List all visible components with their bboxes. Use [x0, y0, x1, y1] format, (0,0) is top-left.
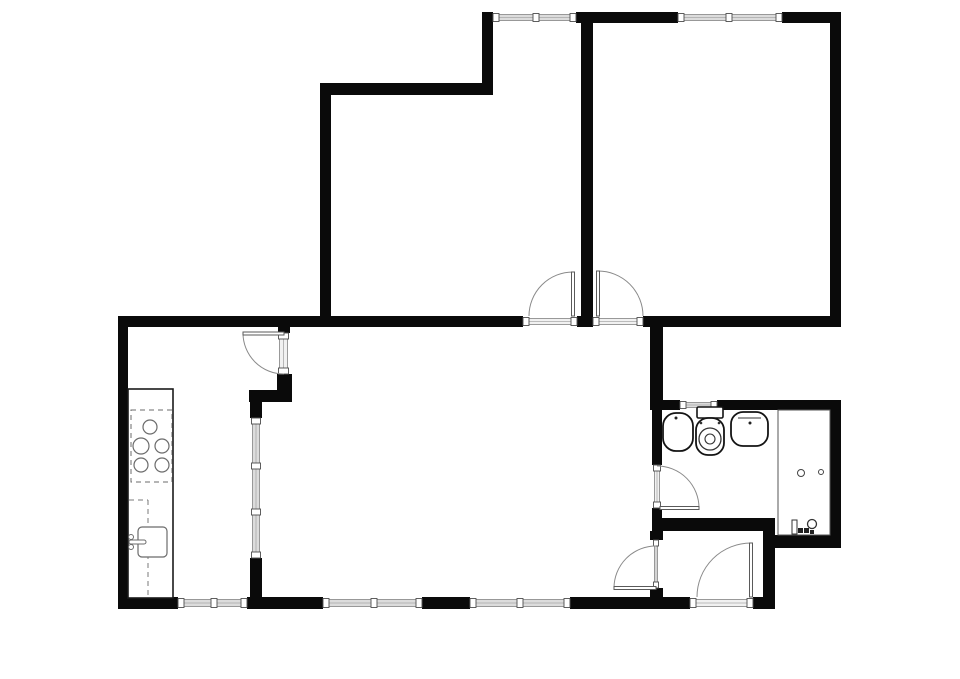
wall-bedroom-middle-left	[320, 83, 331, 327]
washbasin-left-tap	[675, 417, 678, 420]
bath-accessory-1	[798, 528, 803, 533]
wall-kitchen-glass-bottom	[250, 558, 262, 598]
shower-knob-1	[819, 470, 824, 475]
faucet-spout	[129, 540, 146, 544]
window-bottom-right-cap-end	[564, 599, 570, 608]
wall-left	[118, 316, 128, 609]
wall-hall-right	[763, 518, 775, 609]
door-hallway-leaf	[614, 587, 656, 590]
window-bottom-right-cap-start	[470, 599, 476, 608]
wall-kitchen-glass-top	[250, 402, 262, 418]
window-kitchen-partition-mullion-0	[252, 463, 261, 469]
wall-top-connector	[482, 12, 493, 95]
door-bedroom-right-threshold-cap-end	[637, 318, 643, 326]
bath-accessory-4	[810, 530, 814, 534]
window-kitchen-partition-cap-start	[252, 418, 261, 424]
wall-bottom-3	[422, 597, 470, 609]
wall-bedroom-divider	[581, 12, 593, 327]
wall-bottom-2	[247, 597, 323, 609]
bath-accessory-2	[804, 528, 809, 533]
wall-kitchen-door-bottom	[277, 374, 292, 390]
wall-bath-top-right	[717, 400, 838, 410]
door-entrance-leaf	[750, 543, 753, 597]
shower-knob-0	[798, 470, 805, 477]
door-bedroom-right-threshold-cap-start	[593, 318, 599, 326]
toilet-tank	[697, 407, 723, 418]
wall-kitchen-return	[249, 390, 292, 402]
window-kitchen-partition-mullion-1	[252, 509, 261, 515]
window-top-left-cap-end	[570, 14, 576, 22]
window-top-left-mullion-0	[533, 14, 539, 22]
door-bedroom-right-leaf	[597, 271, 600, 316]
window-bathroom-cap-start	[680, 402, 686, 409]
door-kitchen-threshold-cap-end	[279, 368, 289, 374]
faucet-knob-1	[129, 545, 134, 550]
wall-middle-left	[118, 316, 523, 327]
wall-hall-left-upper	[650, 531, 663, 540]
wall-right-bedroom	[830, 12, 841, 327]
window-top-left-cap-start	[493, 14, 499, 22]
toilet-hinge-0	[700, 422, 703, 425]
bath-accessory-0	[792, 520, 797, 534]
toilet-hole	[705, 434, 715, 444]
bath-accessory-3	[808, 520, 817, 529]
window-bottom-middle-cap-end	[416, 599, 422, 608]
wall-bath-top-left	[650, 400, 680, 410]
door-hallway-threshold-cap-start	[654, 540, 659, 546]
floorplan-stage	[0, 0, 960, 679]
floorplan-svg	[0, 0, 960, 679]
door-kitchen-leaf	[243, 332, 284, 335]
door-entrance-threshold-cap-start	[690, 599, 696, 608]
window-bottom-right-mullion-0	[517, 599, 523, 608]
wall-bottom-4	[570, 597, 690, 609]
wall-bath-right	[830, 400, 841, 548]
door-bedroom-middle-leaf	[572, 272, 575, 316]
door-entrance-threshold-cap-end	[747, 599, 753, 608]
washbasin-right-tap	[749, 422, 752, 425]
washbasin-left	[663, 413, 693, 451]
wall-bath-left-upper	[652, 410, 662, 465]
door-bedroom-middle-threshold-cap-end	[571, 318, 577, 326]
wall-middle-right	[643, 316, 841, 327]
washbasin-right	[731, 412, 768, 446]
wall-middle-pillar	[577, 316, 593, 327]
wall-bedroom-middle-top	[320, 83, 493, 95]
window-top-right-cap-end	[776, 14, 782, 22]
window-top-right-cap-start	[678, 14, 684, 22]
door-bathroom-threshold-cap-end	[654, 502, 661, 508]
wall-hall-bath-divider	[652, 518, 775, 531]
window-bottom-left-mullion-0	[211, 599, 217, 608]
window-bottom-middle-cap-start	[323, 599, 329, 608]
wall-hall-upper	[650, 327, 663, 400]
toilet-hinge-1	[718, 422, 721, 425]
window-top-right-mullion-0	[726, 14, 732, 22]
door-bathroom-leaf	[660, 507, 699, 510]
faucet-knob-0	[129, 535, 134, 540]
window-bottom-middle-mullion-0	[371, 599, 377, 608]
window-bottom-left-cap-start	[178, 599, 184, 608]
window-bottom-left-cap-end	[241, 599, 247, 608]
door-bedroom-middle-threshold-cap-start	[523, 318, 529, 326]
window-kitchen-partition-cap-end	[252, 552, 261, 558]
